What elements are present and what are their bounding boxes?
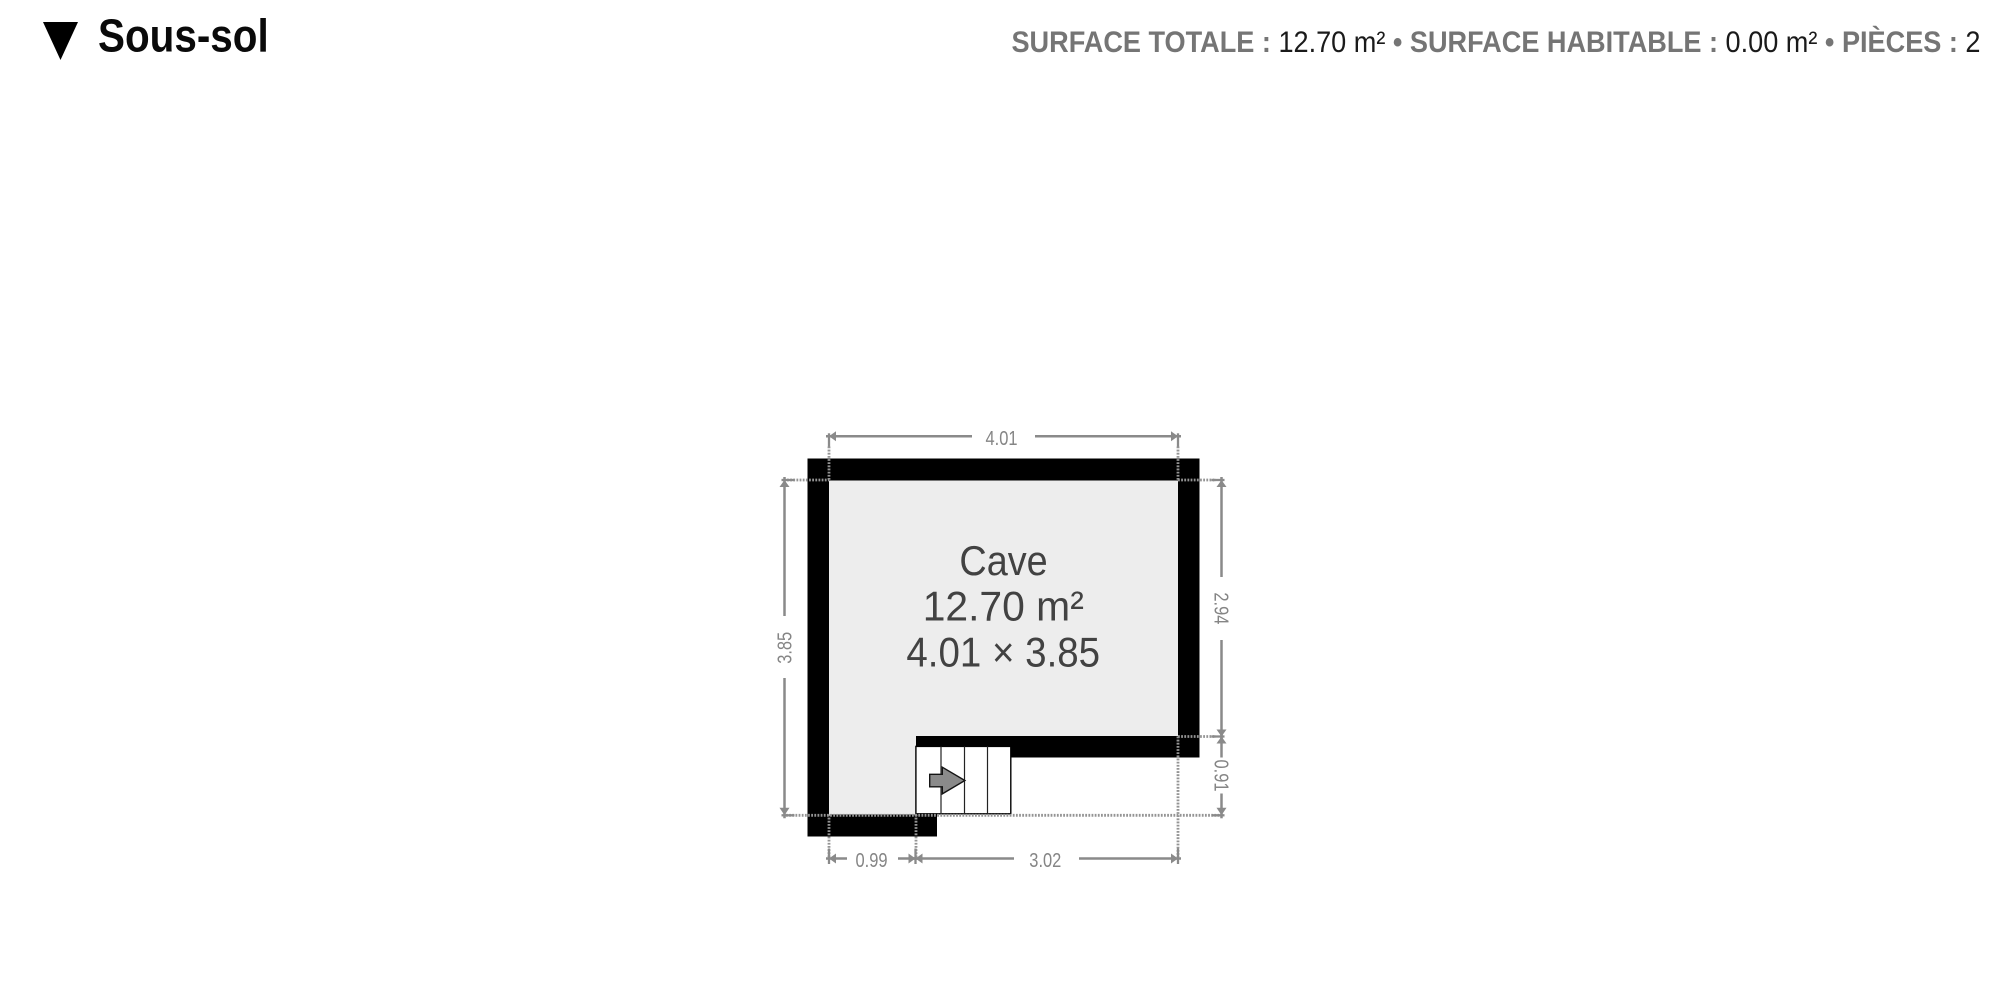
svg-text:SURFACE TOTALE : 12.70 m² • SU: SURFACE TOTALE : 12.70 m² • SURFACE HABI… bbox=[1011, 23, 1980, 59]
svg-text:2.94: 2.94 bbox=[1209, 592, 1231, 624]
svg-text:Sous-sol: Sous-sol bbox=[98, 11, 269, 62]
svg-text:3.85: 3.85 bbox=[775, 632, 797, 664]
svg-text:Cave: Cave bbox=[959, 537, 1047, 584]
svg-text:0.99: 0.99 bbox=[856, 850, 888, 872]
svg-text:4.01: 4.01 bbox=[986, 428, 1018, 450]
svg-text:3.02: 3.02 bbox=[1029, 850, 1061, 872]
svg-text:0.91: 0.91 bbox=[1209, 760, 1231, 792]
svg-text:4.01 × 3.85: 4.01 × 3.85 bbox=[906, 629, 1100, 676]
svg-text:12.70 m²: 12.70 m² bbox=[923, 583, 1084, 630]
